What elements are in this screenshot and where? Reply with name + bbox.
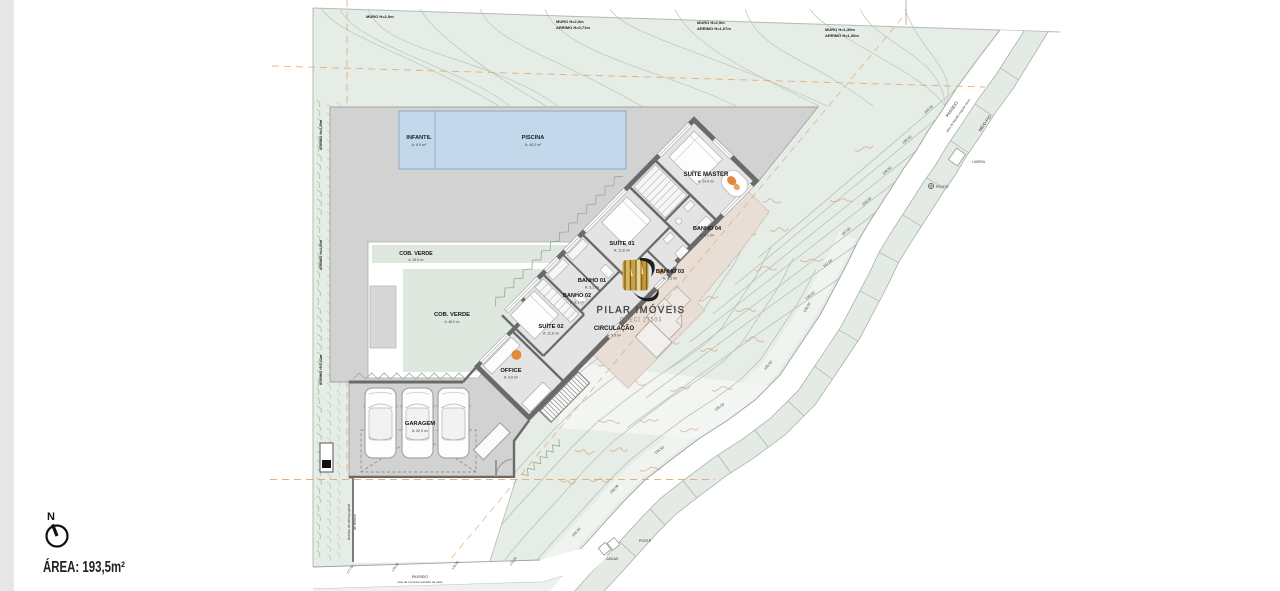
svg-text:SUÍTE 01: SUÍTE 01	[609, 239, 635, 247]
svg-text:A: 4,1 m²: A: 4,1 m²	[700, 234, 715, 238]
svg-text:ARRIMO H=1,30m: ARRIMO H=1,30m	[319, 240, 323, 270]
svg-text:PILAR IMÓVEIS: PILAR IMÓVEIS	[597, 305, 686, 316]
svg-text:A: 40,2 m²: A: 40,2 m²	[525, 143, 542, 147]
svg-text:LIXEIRA: LIXEIRA	[972, 160, 986, 164]
svg-text:CAIXAS: CAIXAS	[606, 557, 619, 561]
svg-text:ARRIMO H=0,62m: ARRIMO H=0,62m	[319, 355, 323, 385]
svg-text:COB. VERDE: COB. VERDE	[434, 312, 470, 318]
svg-text:GARAGEM: GARAGEM	[405, 421, 435, 427]
svg-text:MURO H=2,0m: MURO H=2,0m	[556, 19, 584, 24]
svg-text:OFFICE: OFFICE	[500, 368, 521, 374]
svg-text:PISCINA: PISCINA	[522, 135, 545, 141]
svg-text:INFANTIL: INFANTIL	[406, 135, 432, 141]
svg-text:A: 11,6 m²: A: 11,6 m²	[614, 249, 631, 253]
svg-text:CRECI 27503: CRECI 27503	[620, 317, 662, 324]
svg-text:BANHO 01: BANHO 01	[578, 278, 606, 284]
svg-text:BANHO 02: BANHO 02	[563, 293, 591, 299]
svg-text:MURO H=2,0m: MURO H=2,0m	[366, 14, 394, 19]
svg-text:POSTE: POSTE	[639, 539, 652, 543]
svg-text:A: 3,1 m²: A: 3,1 m²	[585, 286, 600, 290]
svg-text:N: N	[47, 511, 55, 523]
svg-text:A: 48,9 m²: A: 48,9 m²	[444, 320, 460, 324]
svg-text:A: 8,9 m²: A: 8,9 m²	[412, 143, 427, 147]
svg-text:A: 4,1 m²: A: 4,1 m²	[663, 277, 678, 281]
svg-text:MURO H=2,0m: MURO H=2,0m	[697, 20, 725, 25]
svg-text:A: 14,9 m²: A: 14,9 m²	[698, 180, 715, 184]
svg-text:ARRIMO H=1,07m: ARRIMO H=1,07m	[697, 26, 731, 31]
svg-text:PASSEIO: PASSEIO	[412, 575, 428, 579]
svg-text:MURO H=1,30m: MURO H=1,30m	[825, 27, 855, 32]
svg-text:SUÍTE 02: SUÍTE 02	[538, 322, 563, 330]
svg-text:Acesso de serviço geral: Acesso de serviço geral	[347, 504, 351, 540]
svg-text:A: 11,6 m²: A: 11,6 m²	[543, 332, 560, 336]
svg-text:BANHO 04: BANHO 04	[693, 226, 722, 232]
svg-text:A: 62,5 m²: A: 62,5 m²	[412, 429, 429, 433]
svg-text:ÁREA: 193,5m²: ÁREA: 193,5m²	[43, 559, 125, 576]
svg-text:A: 18,9 m²: A: 18,9 m²	[408, 258, 424, 262]
svg-text:piso de concreto usinado da ca: piso de concreto usinado da casa	[398, 580, 443, 584]
svg-text:POSTE: POSTE	[936, 185, 949, 189]
svg-text:ARRIMO H=1,30m: ARRIMO H=1,30m	[319, 120, 323, 150]
svg-text:CIRCULAÇÃO: CIRCULAÇÃO	[594, 325, 635, 332]
svg-text:A: 3,1 m²: A: 3,1 m²	[570, 301, 585, 305]
svg-text:ARRIMO H=0,71m: ARRIMO H=0,71m	[556, 25, 590, 30]
svg-text:ARRIMO H=1,30m: ARRIMO H=1,30m	[825, 33, 859, 38]
svg-text:COB. VERDE: COB. VERDE	[399, 251, 433, 257]
svg-text:BANHO 03: BANHO 03	[656, 269, 684, 275]
svg-text:A: 9,6 m²: A: 9,6 m²	[504, 376, 519, 380]
svg-text:A: 9,9 m²: A: 9,9 m²	[607, 334, 622, 338]
svg-text:de terreno: de terreno	[353, 514, 357, 530]
svg-text:SUÍTE MASTER: SUÍTE MASTER	[684, 170, 729, 178]
